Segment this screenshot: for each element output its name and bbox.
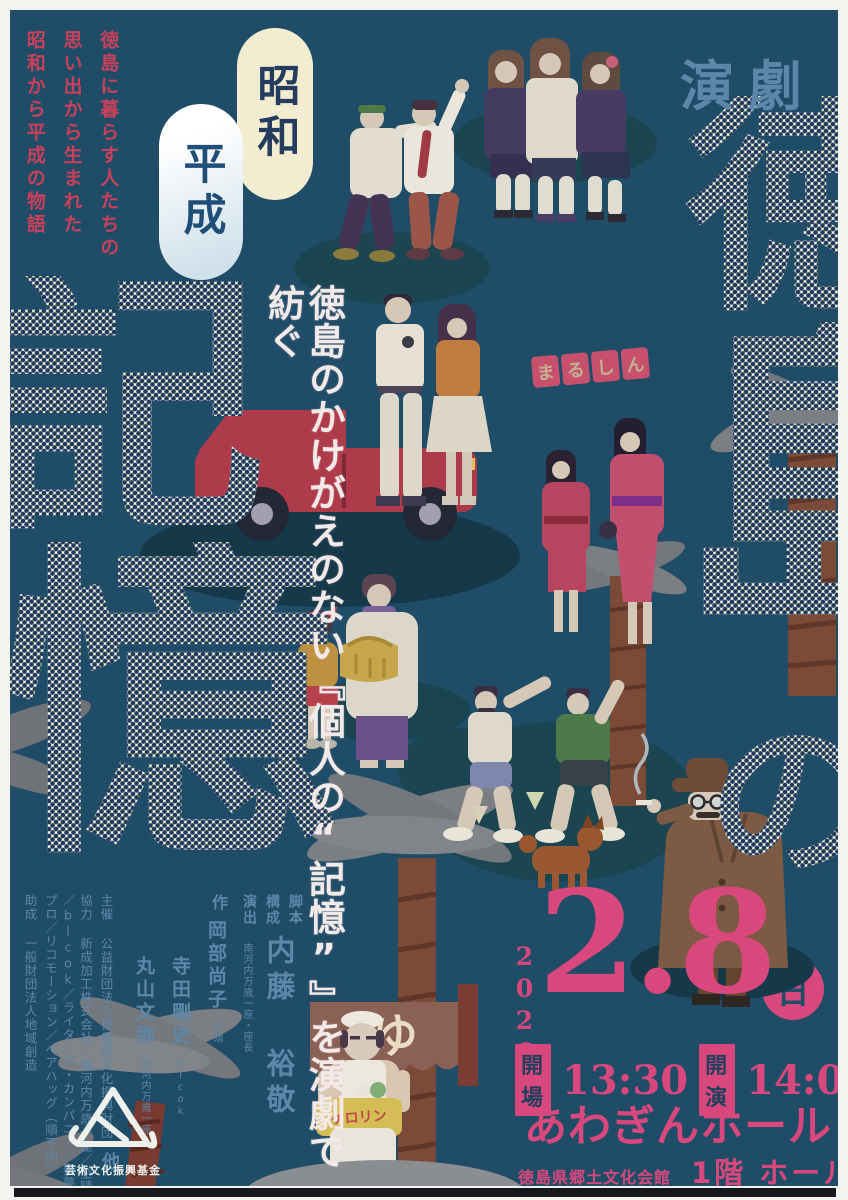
writer-affiliation: 南河内万歳一座・座長 — [239, 935, 254, 1120]
title-char-ki: 記 — [10, 276, 266, 540]
venue-building: 徳島県郷土文化会館 — [518, 1164, 671, 1186]
poster: ゆ ケロリン 徳 島 の 記 憶 徳島に暮らす人たちの 思い出から生まれた 昭和… — [10, 10, 838, 1186]
fund-logo-label: 芸術文化振興基金 — [48, 1162, 178, 1178]
marushin-char-3: し — [591, 350, 621, 383]
tagline-line-2: 思い出から生まれた — [59, 30, 83, 260]
marushin-char-2: る — [561, 352, 591, 385]
genre-label: 演劇 — [680, 42, 816, 121]
credits-writer-column: 脚本 構成 演出 南河内万歳一座・座長 内藤 裕敬 — [239, 894, 305, 1120]
role-script: 脚本 — [285, 894, 305, 926]
tagline: 徳島に暮らす人たちの 思い出から生まれた 昭和から平成の物語 — [22, 30, 119, 260]
disco-women — [542, 418, 664, 644]
schoolgirls-trio — [484, 38, 630, 222]
tagline-line-1: 徳島に暮らす人たちの — [96, 30, 120, 260]
era-pill-heisei-label: 平成 — [170, 141, 232, 243]
venue-details: 徳島県郷土文化会館 1階 ホール — [518, 1150, 838, 1186]
credits-author1-column: 作 岡部尚子空晴 — [203, 894, 230, 1044]
scan-edge-shadow — [14, 1188, 836, 1197]
marushin-char-1: ま — [531, 355, 561, 388]
fund-logo-icon — [58, 1082, 168, 1156]
grant-line: 助成 一般財団法人地域創造 — [21, 894, 39, 1186]
tagline-line-3: 昭和から平成の物語 — [22, 30, 46, 260]
event-date: 2.8 — [538, 872, 773, 1014]
title-char-shima: 島 — [676, 322, 838, 650]
writer-name: 内藤 裕敬 — [258, 935, 300, 1120]
credits-roles: 脚本 構成 演出 — [239, 894, 305, 926]
era-pill-showa: 昭和 — [237, 28, 313, 200]
role-direction: 演出 — [239, 894, 259, 926]
author-1-affiliation: 空晴 — [211, 1022, 222, 1044]
venue-name: あわぎんホール — [524, 1092, 832, 1154]
era-pill-heisei: 平成 — [159, 104, 243, 280]
saku-label: 作 — [203, 894, 230, 910]
era-pill-showa-label: 昭和 — [244, 63, 306, 165]
venue-floor: 1階 ホール — [691, 1150, 838, 1186]
marushin-char-4: ん — [621, 347, 651, 380]
role-composition: 構成 — [262, 894, 282, 926]
fund-logo: 芸術文化振興基金 — [48, 1082, 178, 1178]
author-1: 岡部尚子空晴 — [203, 920, 230, 1044]
